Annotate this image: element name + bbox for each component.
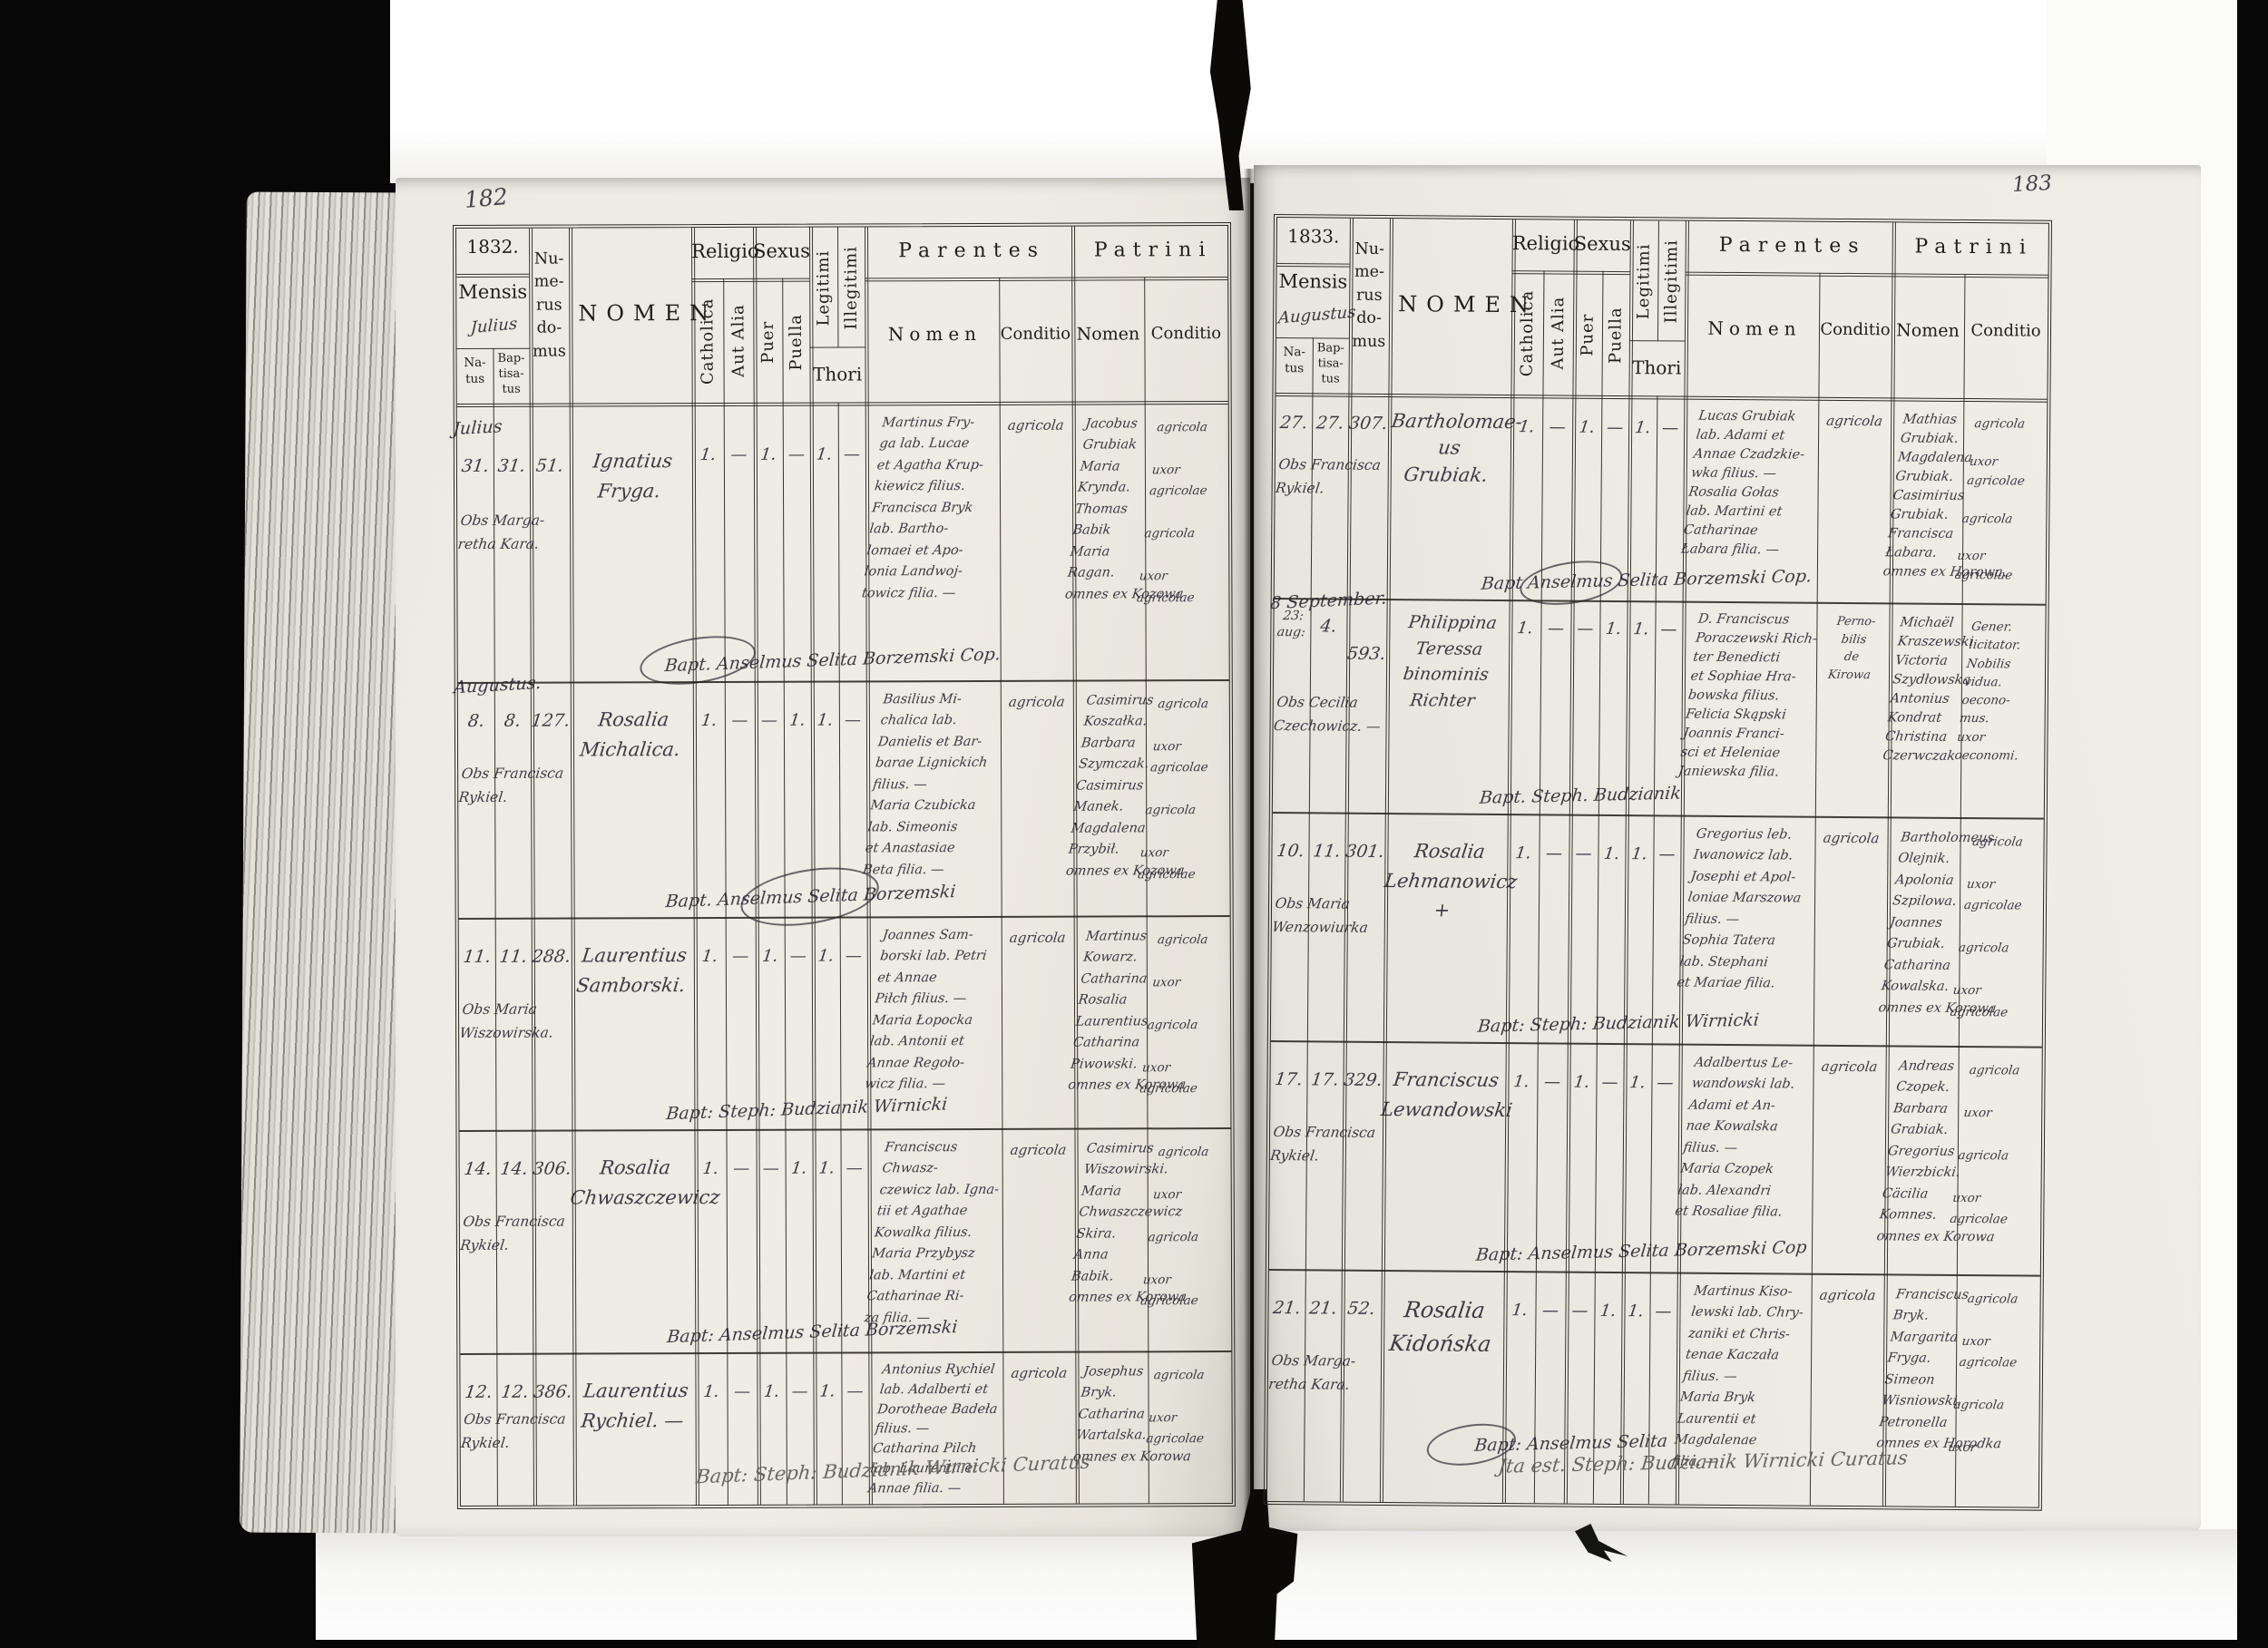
religio-alia-mark: — xyxy=(725,1156,758,1183)
natus-day: 27. xyxy=(1274,409,1314,437)
baptisatus-day: 4. xyxy=(1308,612,1348,640)
religio-catholica-mark: 1. xyxy=(1509,414,1544,441)
legitimi-mark: 1. xyxy=(1624,842,1656,868)
baptism-record: 8 September. 23: aug: 4. 593. Obs Cecili… xyxy=(1273,598,2046,818)
month-handwritten: Augustus xyxy=(1277,300,1350,332)
parents-names: Franciscus Chwasz- czewicz lab. Igna- ti… xyxy=(863,1137,1013,1330)
legitimi-mark: 1. xyxy=(1626,617,1657,643)
mensis-label: Mensis xyxy=(1276,270,1349,293)
month-note: Julius xyxy=(452,405,636,444)
child-name: Rosalia Michalica. xyxy=(567,705,697,765)
sexus-puella-mark: — xyxy=(781,443,811,469)
religio-alia-mark: — xyxy=(722,443,755,469)
table-header: 1833. Mensis Augustus Na- tus Bap- tisa-… xyxy=(1276,218,2048,399)
natus-day: 8. xyxy=(456,707,496,736)
sexus-puella-mark: 1. xyxy=(782,708,812,735)
parents-condition: agricola xyxy=(1818,410,1892,433)
natus-day: 12. xyxy=(459,1379,499,1407)
natus-label: Na- tus xyxy=(1276,345,1313,376)
midwife-note: Obs Francisca Rykiel. xyxy=(457,761,601,809)
legitimi-label: Legitimi xyxy=(809,233,837,344)
baptism-record: 27. 27. 307. Obs Francisca Rykiel. Barth… xyxy=(1275,396,2048,604)
patrini-label: Patrini xyxy=(1892,235,2048,258)
baptisatus-day: 17. xyxy=(1305,1066,1345,1094)
nomen-label: NOMEN xyxy=(569,300,691,326)
religio-catholica-mark: 1. xyxy=(1502,1298,1538,1324)
thori-label: Thori xyxy=(810,363,865,385)
natus-day: 23: aug: xyxy=(1272,609,1313,640)
child-name: Philippina Teressa binominis Richter xyxy=(1380,609,1516,714)
parents-names: D. Franciscus Poraczewski Rich- ter Bene… xyxy=(1677,610,1827,783)
legitimi-mark: 1. xyxy=(809,708,840,735)
sexus-puella-mark: — xyxy=(785,1380,815,1406)
sexus-puer-mark: — xyxy=(753,708,785,735)
house-number: 593. xyxy=(1344,640,1388,668)
records-area: Julius 31. 31. 51. Obs Marga- retha Kara… xyxy=(457,401,1232,1506)
scan-background-top xyxy=(390,0,2235,183)
parents-condition: agricola xyxy=(1811,1284,1884,1307)
illegitimi-mark: — xyxy=(1655,415,1686,442)
sexus-puer-mark: 1. xyxy=(1566,1070,1598,1097)
natus-day: 17. xyxy=(1269,1066,1309,1094)
sexus-puer-mark: 1. xyxy=(1570,415,1603,442)
baptizer-note: Bapt. Anselmus Selita Borzemski Cop. xyxy=(663,632,1226,679)
book-page-edges xyxy=(240,192,410,1534)
house-number: 306. xyxy=(531,1156,574,1184)
numerus-domus-label: Nu- me- rus do- mus xyxy=(529,249,569,364)
child-name: Rosalia Kidońska xyxy=(1377,1293,1509,1361)
religio-catholica-mark: 1. xyxy=(1508,616,1543,642)
baptism-record: Augustus. 8. 8. 127. Obs Francisca Rykie… xyxy=(458,679,1230,918)
parents-names: Joannes Sam- borski lab. Petri et Annae … xyxy=(864,925,1012,1096)
religio-catholica-mark: 1. xyxy=(1506,841,1541,867)
baptizer-note: Bapt: Steph: Budzianik Wirnicki xyxy=(1476,1000,2038,1040)
legitimi-mark: 1. xyxy=(810,944,841,970)
illegitimi-mark: — xyxy=(840,1379,870,1405)
child-name: Laurentius Samborski. xyxy=(568,941,698,1000)
illegitimi-mark: — xyxy=(837,707,867,734)
sexus-puer-mark: 1. xyxy=(756,1380,787,1406)
religio-alia-mark: — xyxy=(1538,841,1571,867)
puer-label: Puer xyxy=(1572,280,1602,391)
baptizer-note: Bapt. Steph. Budzianik xyxy=(1478,771,2040,812)
baptism-record: 10. 11. 301. Obs Maria Wenzowiurka Rosal… xyxy=(1271,812,2044,1047)
illegitimi-label: Illegitimi xyxy=(837,232,865,343)
illegitimi-mark: — xyxy=(1650,1070,1681,1097)
aut-alia-label: Aut Alia xyxy=(723,284,753,398)
religio-alia-mark: — xyxy=(1540,414,1574,441)
child-name: Laurentius Rychiel. — xyxy=(570,1376,699,1436)
religio-label: Religio xyxy=(1512,232,1574,255)
page-number-left: 182 xyxy=(464,183,509,213)
sexus-puer-mark: — xyxy=(1564,1299,1597,1325)
register-table-left: 1832. Mensis Julius Na- tus Bap- tisa- t… xyxy=(453,222,1236,1509)
nomen-label: NOMEN xyxy=(1389,291,1511,317)
baptism-record: 14. 14. 306. Obs Francisca Rykiel. Rosal… xyxy=(459,1127,1231,1353)
mensis-label: Mensis xyxy=(456,281,529,303)
house-number: 127. xyxy=(529,707,572,736)
illegitimi-mark: — xyxy=(839,1156,869,1182)
legitimi-mark: 1. xyxy=(812,1380,843,1406)
parents-condition: agricola xyxy=(1814,827,1888,850)
natus-day: 10. xyxy=(1270,837,1310,865)
patrini-nomen-label: Nomen xyxy=(1071,324,1144,344)
house-number: 301. xyxy=(1343,838,1386,866)
numerus-domus-label: Nu- me- rus do- mus xyxy=(1349,239,1390,354)
parents-names: Martinus Fry- ga lab. Lucae et Agatha Kr… xyxy=(860,413,1011,605)
natus-day: 11. xyxy=(457,943,497,971)
godparents-condition: agricola uxor agricolae xyxy=(1145,1365,1237,1450)
illegitimi-label: Illegitimi xyxy=(1657,226,1686,336)
baptisatus-day: 31. xyxy=(492,453,532,481)
records-area: 27. 27. 307. Obs Francisca Rykiel. Barth… xyxy=(1267,393,2048,1507)
parentes-nomen-label: Nomen xyxy=(1685,317,1819,340)
sexus-puella-mark: — xyxy=(1595,1070,1626,1097)
natus-day: 14. xyxy=(458,1156,498,1184)
book-binding-gap xyxy=(1244,169,1256,1531)
month-handwritten: Julius xyxy=(458,310,530,343)
page-number-right: 183 xyxy=(2011,171,2052,197)
legitimi-mark: 1. xyxy=(1622,1070,1654,1097)
patrini-conditio-label: Conditio xyxy=(1964,321,2048,341)
baptisatus-day: 14. xyxy=(494,1156,534,1184)
puella-label: Puella xyxy=(782,288,809,398)
baptizer-note: Bapt: Anselmus Selita Borzemski Cop xyxy=(1474,1228,2037,1269)
religio-catholica-mark: 1. xyxy=(691,708,726,735)
religio-alia-mark: — xyxy=(723,708,756,735)
baptisatus-day: 27. xyxy=(1310,409,1350,437)
child-name: Bartholomae- us Grubiak. xyxy=(1383,408,1516,489)
baptisatus-day: 21. xyxy=(1304,1294,1344,1322)
religio-catholica-mark: 1. xyxy=(692,944,727,970)
table-header: 1832. Mensis Julius Na- tus Bap- tisa- t… xyxy=(456,226,1228,404)
parents-condition: agricola xyxy=(1813,1056,1886,1078)
year-label: 1833. xyxy=(1277,225,1350,248)
baptisatus-day: 11. xyxy=(1306,837,1346,865)
aut-alia-label: Aut Alia xyxy=(1542,276,1573,390)
baptism-record: Julius 31. 31. 51. Obs Marga- retha Kara… xyxy=(457,405,1229,682)
religio-alia-mark: — xyxy=(1534,1298,1568,1324)
puer-label: Puer xyxy=(753,288,782,398)
religio-alia-mark: — xyxy=(724,944,757,970)
religio-alia-mark: — xyxy=(1536,1069,1569,1096)
sexus-puer-mark: — xyxy=(1568,842,1600,868)
sexus-puella-mark: 1. xyxy=(1598,617,1629,643)
illegitimi-mark: — xyxy=(838,943,868,970)
patrini-conditio-label: Conditio xyxy=(1144,324,1227,343)
sexus-puella-mark: — xyxy=(783,944,813,970)
house-number: 307. xyxy=(1346,410,1390,438)
midwife-note: Obs Maria Wiszowirska. xyxy=(458,997,601,1045)
baptisatus-day: 11. xyxy=(494,943,533,971)
parents-names: Lucas Grubiak lab. Adami et Annae Czadzk… xyxy=(1680,407,1828,561)
religio-catholica-mark: 1. xyxy=(693,1156,728,1183)
parents-names: Gregorius leb. Iwanowicz lab. Josephi et… xyxy=(1676,824,1826,996)
parents-condition: agricola xyxy=(999,414,1072,436)
puella-label: Puella xyxy=(1601,280,1629,391)
patrini-nomen-label: Nomen xyxy=(1892,320,1964,341)
child-name: Rosalia Lehmanowicz + xyxy=(1379,836,1513,926)
child-name: Franciscus Lewandowski xyxy=(1379,1065,1509,1125)
baptism-record: 11. 11. 288. Obs Maria Wiszowirska. Laur… xyxy=(459,915,1231,1130)
parents-condition: agricola xyxy=(1002,1362,1076,1384)
illegitimi-mark: — xyxy=(1654,617,1685,643)
religio-label: Religio xyxy=(691,240,753,262)
catholica-label: Catholica xyxy=(1510,276,1543,390)
baptisatus-label: Bap- tisa- tus xyxy=(493,352,529,398)
child-name: Ignatius Fryga. xyxy=(566,446,696,506)
baptisatus-day: 12. xyxy=(495,1379,535,1407)
parents-condition: agricola xyxy=(1001,927,1074,949)
thori-label: Thori xyxy=(1629,356,1685,378)
religio-alia-mark: — xyxy=(1540,616,1573,642)
parentes-conditio-label: Conditio xyxy=(1819,320,1892,340)
house-number: 386. xyxy=(532,1379,575,1407)
parentes-nomen-label: Nomen xyxy=(865,323,999,346)
parentes-conditio-label: Conditio xyxy=(999,325,1071,344)
parentes-label: Parentes xyxy=(1686,234,1892,258)
religio-alia-mark: — xyxy=(726,1380,758,1406)
sexus-puella-mark: 1. xyxy=(1593,1299,1624,1325)
natus-day: 31. xyxy=(455,453,495,481)
legitimi-mark: 1. xyxy=(808,443,839,469)
parents-names: Basilius Mi- chalica lab. Danielis et Ba… xyxy=(862,689,1012,882)
midwife-note: Obs Francisca Rykiel. xyxy=(1269,1120,1413,1169)
sexus-puer-mark: — xyxy=(1569,617,1602,643)
religio-catholica-mark: 1. xyxy=(694,1380,728,1406)
religio-catholica-mark: 1. xyxy=(690,443,725,469)
natus-label: Na- tus xyxy=(457,356,494,387)
parents-condition: agricola xyxy=(1002,1139,1075,1161)
legitimi-mark: 1. xyxy=(1627,415,1658,442)
parents-condition: Perno- bilis de Kirowa xyxy=(1813,613,1892,685)
legitimi-label: Legitimi xyxy=(1629,226,1658,336)
catholica-label: Catholica xyxy=(691,284,723,398)
sexus-puer-mark: 1. xyxy=(754,944,786,970)
midwife-note: Obs Francisca Rykiel. xyxy=(459,1209,602,1257)
register-table-right: 1833. Mensis Augustus Na- tus Bap- tisa-… xyxy=(1264,214,2052,1511)
house-number: 288. xyxy=(530,943,573,971)
illegitimi-mark: — xyxy=(836,442,866,468)
legitimi-mark: 1. xyxy=(1620,1299,1652,1325)
sexus-puella-mark: — xyxy=(1599,415,1630,442)
year-label: 1832. xyxy=(456,236,529,258)
natus-day: 21. xyxy=(1267,1294,1307,1322)
midwife-note: Obs Marga- retha Kara. xyxy=(456,508,600,556)
sexus-puer-mark: — xyxy=(755,1156,787,1183)
house-number: 329. xyxy=(1342,1067,1385,1095)
sexus-label: Sexus xyxy=(753,240,809,262)
house-number: 52. xyxy=(1340,1295,1383,1323)
baptisatus-day: 8. xyxy=(493,707,533,736)
house-number: 51. xyxy=(528,453,572,481)
child-name: Rosalia Chwaszczewicz xyxy=(569,1153,699,1213)
religio-catholica-mark: 1. xyxy=(1504,1069,1540,1096)
illegitimi-mark: — xyxy=(1648,1299,1679,1325)
patrini-label: Patrini xyxy=(1071,239,1227,262)
parents-condition: agricola xyxy=(1000,691,1073,713)
sexus-puella-mark: 1. xyxy=(784,1156,814,1183)
baptisatus-label: Bap- tisa- tus xyxy=(1313,341,1349,387)
sexus-puella-mark: 1. xyxy=(1597,842,1628,868)
parents-names: Adalbertus Le- wandowski lab. Adami et A… xyxy=(1674,1053,1824,1224)
parentes-label: Parentes xyxy=(865,239,1071,263)
illegitimi-mark: — xyxy=(1652,842,1683,868)
baptism-record: 17. 17. 329. Obs Francisca Rykiel. Franc… xyxy=(1269,1040,2042,1275)
sexus-label: Sexus xyxy=(1574,233,1630,255)
legitimi-mark: 1. xyxy=(811,1156,842,1183)
sexus-puer-mark: 1. xyxy=(752,443,784,469)
